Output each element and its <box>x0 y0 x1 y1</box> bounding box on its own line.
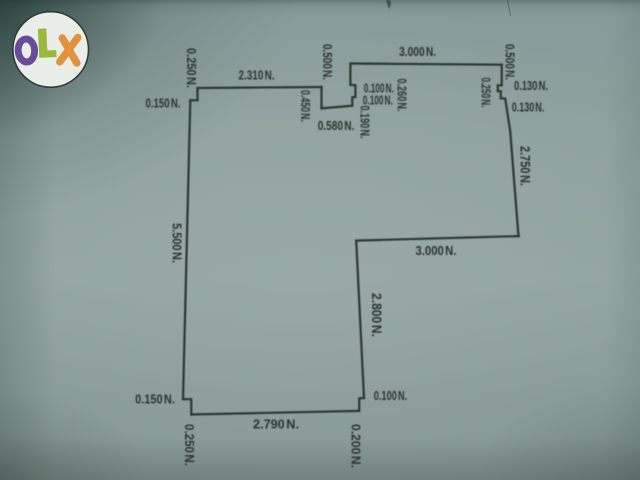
svg-text:0.200 N.: 0.200 N. <box>349 424 364 468</box>
svg-text:5.500 N.: 5.500 N. <box>170 223 185 263</box>
svg-text:0.250 N.: 0.250 N. <box>184 48 199 88</box>
svg-text:0.130 N.: 0.130 N. <box>512 100 545 115</box>
svg-text:0.100 N.: 0.100 N. <box>374 388 408 403</box>
svg-text:3.000 N.: 3.000 N. <box>399 44 436 59</box>
svg-text:2.800 N.: 2.800 N. <box>369 293 385 337</box>
svg-text:2.750 N.: 2.750 N. <box>518 146 534 186</box>
svg-text:0.150 N.: 0.150 N. <box>146 96 181 111</box>
svg-text:3.000 N.: 3.000 N. <box>416 243 457 258</box>
svg-text:0.450 N.: 0.450 N. <box>298 90 313 122</box>
svg-text:0.250 N.: 0.250 N. <box>182 424 197 466</box>
svg-text:2.790 N.: 2.790 N. <box>253 417 299 432</box>
svg-text:0.260 N.: 0.260 N. <box>395 79 410 112</box>
svg-text:2.310 N.: 2.310 N. <box>239 68 275 83</box>
svg-text:0.580 N.: 0.580 N. <box>318 118 355 133</box>
svg-text:0.500 N.: 0.500 N. <box>320 44 335 80</box>
svg-text:0.190 N.: 0.190 N. <box>358 106 373 139</box>
svg-text:0.500 N.: 0.500 N. <box>503 44 518 80</box>
svg-text:0.250 N.: 0.250 N. <box>479 78 494 108</box>
svg-text:0.130 N.: 0.130 N. <box>514 78 548 93</box>
svg-text:0.150 N.: 0.150 N. <box>135 392 175 407</box>
